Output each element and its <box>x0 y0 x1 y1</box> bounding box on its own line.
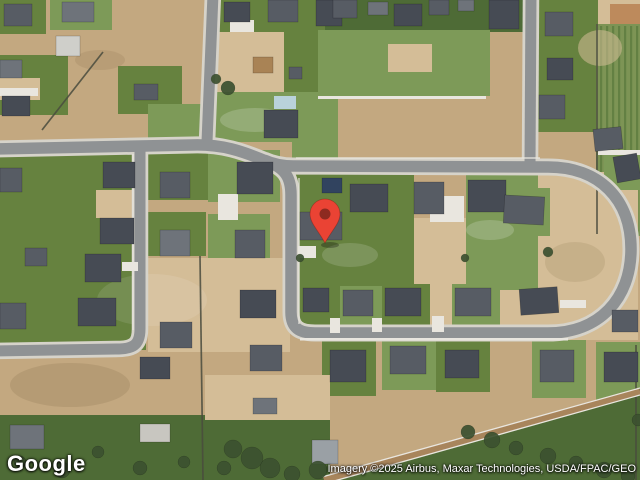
building-roof <box>0 60 22 78</box>
building-roof <box>519 287 559 316</box>
tree <box>484 432 500 448</box>
building-roof <box>612 310 638 332</box>
building-roof <box>333 0 357 18</box>
field-patch <box>148 104 204 140</box>
building-roof <box>489 0 519 29</box>
building-roof <box>303 288 329 312</box>
building-roof <box>385 288 421 316</box>
building-roof <box>540 350 574 382</box>
terrain-blotch <box>545 242 605 282</box>
building-roof <box>604 352 638 382</box>
tree <box>217 461 231 475</box>
building-roof <box>224 2 250 22</box>
building-roof <box>264 110 298 138</box>
location-pin-dot[interactable] <box>320 209 331 220</box>
driveway-pad <box>372 318 382 332</box>
building-roof <box>140 424 170 442</box>
building-roof <box>593 127 623 152</box>
terrain-blotch <box>10 363 130 407</box>
tree <box>509 441 523 455</box>
building-roof <box>160 172 190 198</box>
tree <box>211 74 221 84</box>
driveway-pad <box>218 194 238 220</box>
building-roof <box>368 2 388 15</box>
building-roof <box>330 350 366 382</box>
tree <box>133 461 147 475</box>
tree <box>461 425 475 439</box>
road <box>530 0 531 164</box>
tree <box>178 456 190 468</box>
terrain-blotch <box>75 50 125 70</box>
tree <box>309 461 327 479</box>
building-roof <box>545 12 573 36</box>
tree <box>461 254 469 262</box>
road <box>207 0 213 142</box>
field-patch <box>292 92 338 164</box>
pin-shadow <box>321 242 339 248</box>
building-roof <box>613 153 640 183</box>
building-roof <box>103 162 135 188</box>
driveway-pad <box>122 262 138 271</box>
building-roof <box>100 218 134 244</box>
building-roof <box>235 230 265 258</box>
driveway-pad <box>330 318 340 333</box>
building-roof <box>350 184 388 212</box>
building-roof <box>539 95 565 119</box>
building-roof <box>322 178 342 193</box>
building-roof <box>25 248 47 266</box>
building-roof <box>250 345 282 371</box>
building-roof <box>289 67 302 79</box>
building-roof <box>0 303 26 329</box>
driveway-pad <box>560 300 586 308</box>
building-roof <box>78 298 116 326</box>
tree <box>296 254 304 262</box>
building-roof <box>160 322 192 348</box>
driveway-pad <box>432 316 444 332</box>
building-roof <box>134 84 158 100</box>
building-roof <box>445 350 479 378</box>
tree <box>221 81 235 95</box>
building-roof <box>547 58 573 80</box>
building-roof <box>429 0 449 15</box>
building-roof <box>468 180 506 212</box>
satellite-map-canvas[interactable] <box>0 0 640 480</box>
building-roof <box>0 168 22 192</box>
building-roof <box>62 2 94 22</box>
google-logo[interactable]: Google <box>7 451 86 477</box>
building-roof <box>2 96 30 116</box>
building-roof <box>343 290 373 316</box>
building-roof <box>237 162 273 194</box>
building-roof <box>390 346 426 374</box>
building-roof <box>160 230 190 256</box>
tree <box>241 447 263 469</box>
building-roof <box>140 357 170 379</box>
building-roof <box>10 425 44 449</box>
tree <box>92 446 104 458</box>
building-roof <box>394 4 422 26</box>
building-roof <box>4 4 32 26</box>
building-roof <box>240 290 276 318</box>
building-roof <box>85 254 121 282</box>
tree <box>540 448 556 464</box>
tree <box>224 440 242 458</box>
driveway-pad <box>318 96 486 99</box>
field-patch <box>388 44 432 72</box>
terrain-blotch <box>578 30 622 66</box>
building-roof <box>312 440 338 464</box>
pool <box>274 96 296 109</box>
building-roof <box>458 0 474 11</box>
building-roof <box>268 0 298 22</box>
driveway-pad <box>300 338 568 341</box>
building-roof <box>414 182 444 214</box>
building-roof <box>455 288 491 316</box>
building-roof <box>253 398 277 414</box>
map-viewport[interactable]: Google Imagery ©2025 Airbus, Maxar Techn… <box>0 0 640 480</box>
tree <box>543 247 553 257</box>
driveway-pad <box>0 88 38 96</box>
building-roof <box>503 195 544 225</box>
building-roof <box>56 36 80 56</box>
tree <box>284 466 300 480</box>
map-attribution: Imagery ©2025 Airbus, Maxar Technologies… <box>328 463 637 475</box>
tree <box>260 458 280 478</box>
building-roof <box>253 57 273 73</box>
